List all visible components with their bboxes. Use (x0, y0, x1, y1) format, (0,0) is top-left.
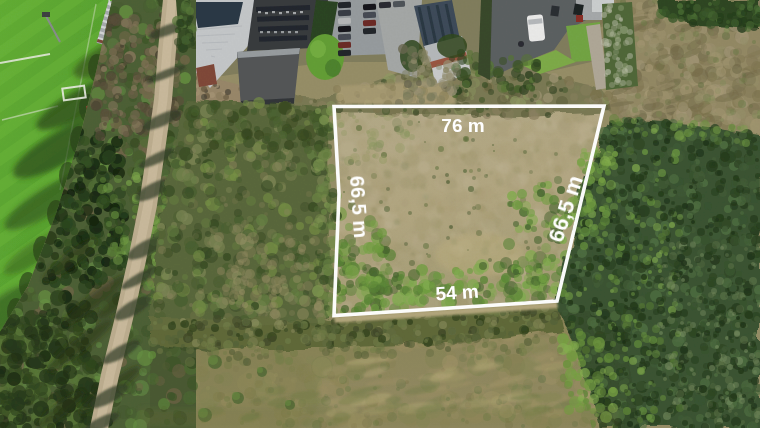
svg-text:54 m: 54 m (435, 281, 480, 305)
svg-text:66,5 m: 66,5 m (346, 175, 372, 239)
svg-text:76 m: 76 m (441, 115, 484, 136)
